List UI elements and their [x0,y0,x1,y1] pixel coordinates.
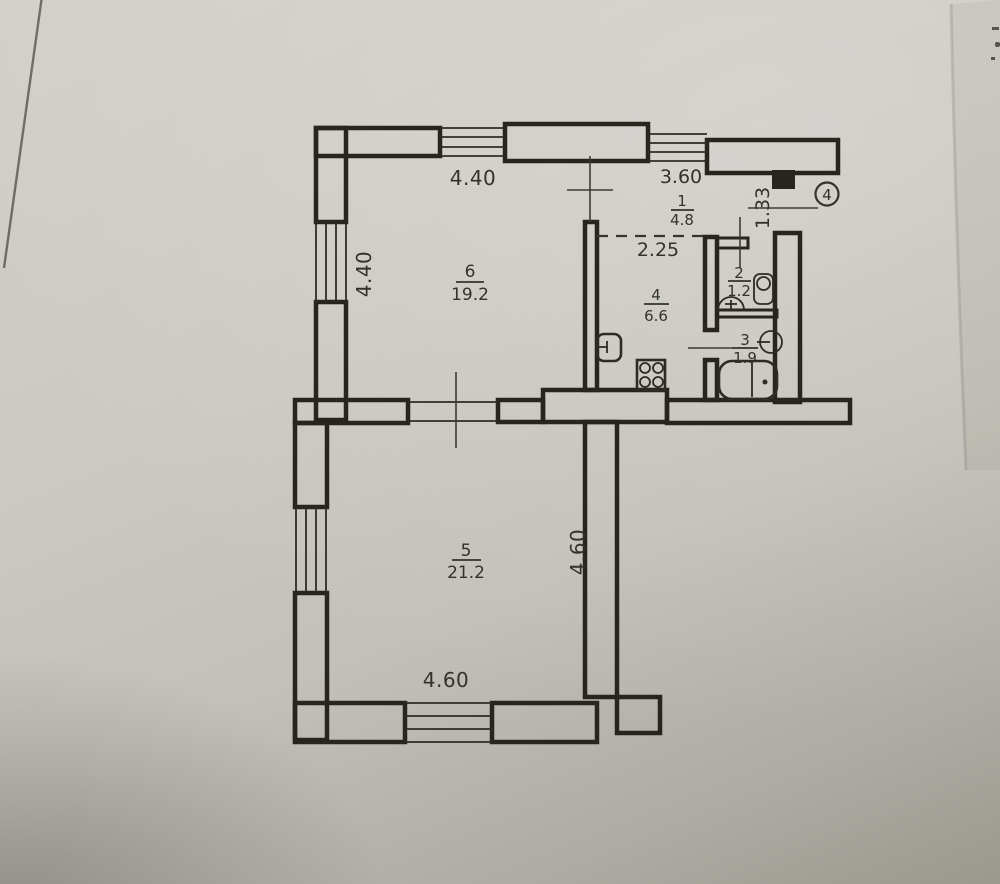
porch-wall-stub [617,697,660,733]
svg-text:4.8: 4.8 [670,211,694,229]
svg-text:4: 4 [651,286,661,304]
bottom-wall-right-segment [667,400,850,423]
dim-room5-bottom: 4.60 [423,668,470,692]
window-bottom-room5-icon [405,703,492,742]
svg-text:5: 5 [461,541,472,561]
svg-text:6.6: 6.6 [644,307,668,325]
fixtures [597,274,782,399]
dim-room5-right: 4.60 [566,529,590,576]
svg-text:19.2: 19.2 [451,285,489,305]
washbasin-icon [757,331,782,353]
floor-plan-photo: 4.40 3.60 4.60 2.25 4.40 4.60 1.33 1 4.8… [0,0,1000,884]
svg-text:1: 1 [677,192,687,210]
dim-left-wall: 4.40 [352,251,376,298]
svg-text:3: 3 [740,331,750,349]
room-label-hall: 1 4.8 [670,192,694,229]
left-wall-room5-upper [295,423,327,507]
dimension-labels: 4.40 3.60 4.60 2.25 4.40 4.60 1.33 [352,166,774,692]
windows [296,128,707,742]
window-top-right-icon [648,134,707,161]
svg-text:2: 2 [734,264,744,282]
right-exterior-wall [775,233,800,402]
paper-fold-shade [951,0,1000,470]
toilet-icon [754,274,773,304]
room-label-room5: 5 21.2 [447,541,485,583]
window-left-room6-icon [316,222,346,302]
partition-walls [585,222,777,400]
room-label-kitchen: 4 6.6 [644,286,669,325]
dim-entrance-door: 1.33 [752,187,774,229]
partition-bathroom-top [717,238,748,248]
dim-top-left: 4.40 [450,166,497,190]
window-left-room5-icon [296,507,326,593]
partition-kitchen-bath-lower [705,360,717,400]
top-wall-right-segment [707,140,838,173]
dim-passage: 2.25 [637,239,679,261]
partition-kitchen-bath-upper [705,237,717,330]
partition-room6-kitchen [585,222,597,390]
svg-text:6: 6 [465,262,476,282]
dim-top-right: 3.60 [660,166,702,188]
floor-plan-drawing: 4.40 3.60 4.60 2.25 4.40 4.60 1.33 1 4.8… [0,0,1000,884]
bottom-wall-room5-right [492,703,597,742]
door-openings [408,156,590,421]
window-top-left-icon [440,128,505,156]
room-labels: 1 4.8 6 19.2 4 6.6 2 1.2 3 1.9 5 21.2 [447,192,758,583]
svg-text:21.2: 21.2 [447,563,485,583]
door-leaf-icon [597,334,621,361]
top-wall-left-segment [316,128,440,156]
entrance-door-jamb [772,170,795,189]
bottom-wall-room5-left [295,703,405,742]
left-wall-lower-segment [316,302,346,420]
bottom-wall-mid-pier [498,400,543,422]
svg-text:1.9: 1.9 [733,349,757,367]
apartment-number: 4 [822,186,832,204]
kitchen-bottom-wall [543,390,667,422]
left-wall-room5-lower [295,593,327,740]
top-wall-pier [505,124,648,161]
room-label-room6: 6 19.2 [451,262,489,305]
stove-icon [637,360,665,390]
apartment-number-badge: 4 [816,183,839,206]
room-label-toilet: 3 1.9 [732,331,758,367]
page-edge-line [4,0,42,268]
left-wall-upper-segment [316,128,346,222]
bottom-wall-junction-left [295,400,408,423]
partition-bathroom-toilet [717,310,777,317]
svg-text:1.2: 1.2 [727,282,751,300]
room-label-bathroom: 2 1.2 [727,264,751,300]
